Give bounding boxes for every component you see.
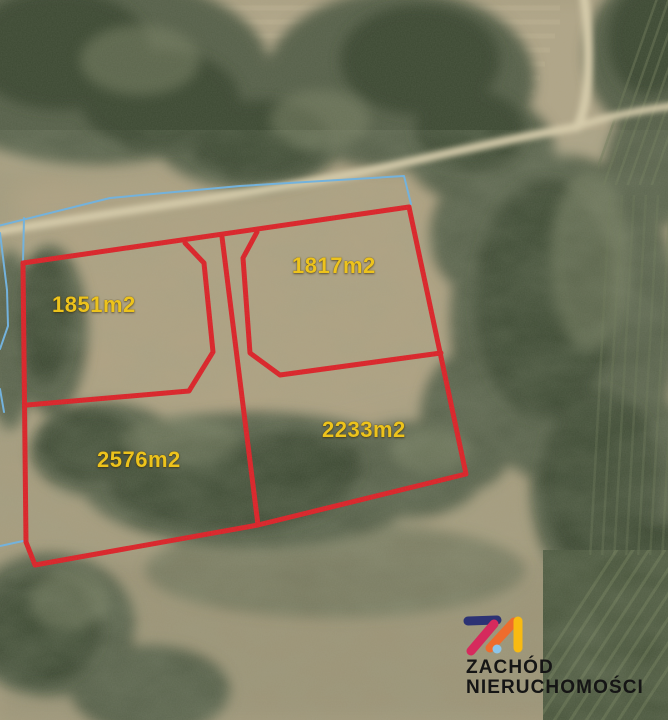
- parcel-area-label-2233: 2233m2: [322, 417, 406, 443]
- agency-name-line1: ZACHÓD: [466, 658, 644, 678]
- parcel-area-label-1851: 1851m2: [52, 292, 136, 318]
- listing-photo: 1851m2 1817m2 2576m2 2233m2 ZACHÓD NIERU…: [0, 0, 668, 720]
- logo-mark-icon: [440, 588, 540, 658]
- parcel-area-label-2576: 2576m2: [97, 447, 181, 473]
- parcel-area-label-1817: 1817m2: [292, 253, 376, 279]
- agency-name-line2: NIERUCHOMOŚCI: [466, 678, 644, 698]
- aerial-photo-background: [0, 0, 668, 720]
- agency-name: ZACHÓD NIERUCHOMOŚCI: [466, 658, 644, 698]
- logo-dot-icon: [493, 645, 502, 654]
